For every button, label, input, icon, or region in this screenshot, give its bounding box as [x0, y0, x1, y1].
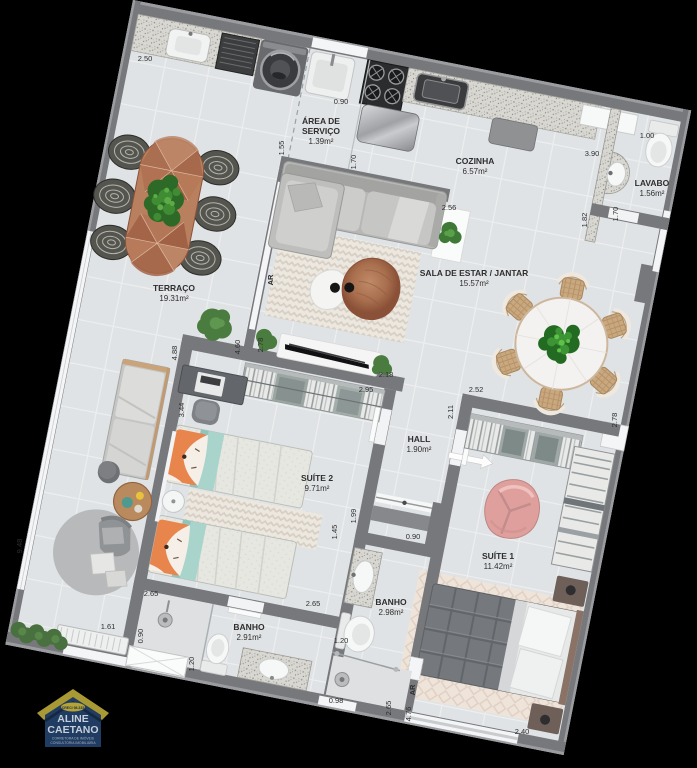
svg-text:3.44: 3.44 — [177, 403, 186, 418]
svg-text:SUÍTE 1: SUÍTE 1 — [482, 551, 514, 561]
svg-text:0.90: 0.90 — [406, 532, 421, 541]
svg-text:1.82: 1.82 — [580, 213, 589, 228]
svg-text:AR: AR — [408, 684, 417, 695]
svg-text:2.18: 2.18 — [379, 370, 394, 379]
svg-text:2.65: 2.65 — [144, 589, 159, 598]
svg-text:1.39m²: 1.39m² — [309, 137, 334, 146]
svg-text:AR: AR — [266, 274, 275, 285]
svg-text:1.99: 1.99 — [349, 509, 358, 524]
svg-text:19.31m²: 19.31m² — [159, 294, 189, 303]
svg-text:SERVIÇO: SERVIÇO — [302, 126, 340, 136]
svg-text:1.61: 1.61 — [101, 622, 116, 631]
svg-text:15.57m²: 15.57m² — [459, 279, 489, 288]
svg-text:2.65: 2.65 — [384, 701, 393, 716]
svg-text:0.90: 0.90 — [136, 629, 145, 644]
svg-text:2.78: 2.78 — [610, 413, 619, 428]
svg-text:2.65: 2.65 — [306, 599, 321, 608]
svg-text:1.00: 1.00 — [640, 131, 655, 140]
svg-text:2.98m²: 2.98m² — [379, 608, 404, 617]
svg-text:SUÍTE 2: SUÍTE 2 — [301, 473, 333, 483]
svg-text:1.70: 1.70 — [611, 207, 620, 222]
svg-text:2.52: 2.52 — [469, 385, 484, 394]
svg-text:ÁREA DE: ÁREA DE — [302, 116, 340, 126]
svg-text:2.91m²: 2.91m² — [237, 633, 262, 642]
svg-text:0.98: 0.98 — [329, 696, 344, 705]
svg-text:2.56: 2.56 — [442, 203, 457, 212]
svg-text:2.50: 2.50 — [138, 54, 153, 63]
svg-text:CAETANO: CAETANO — [47, 724, 98, 736]
svg-text:6.57m²: 6.57m² — [463, 167, 488, 176]
svg-text:9.48: 9.48 — [15, 539, 24, 554]
svg-text:0.90: 0.90 — [334, 97, 349, 106]
svg-text:1.45: 1.45 — [330, 525, 339, 540]
svg-text:LAVABO: LAVABO — [635, 178, 670, 188]
svg-text:1.20: 1.20 — [334, 636, 349, 645]
svg-text:1.90m²: 1.90m² — [407, 445, 432, 454]
svg-text:2.95: 2.95 — [359, 385, 374, 394]
svg-text:2.11: 2.11 — [446, 405, 455, 419]
svg-text:2.40: 2.40 — [515, 727, 530, 736]
svg-text:BANHO: BANHO — [233, 622, 265, 632]
svg-text:CONSULTORIA IMOBILIÁRIA: CONSULTORIA IMOBILIÁRIA — [50, 741, 96, 745]
svg-text:4.88: 4.88 — [170, 346, 179, 361]
svg-text:SALA DE ESTAR / JANTAR: SALA DE ESTAR / JANTAR — [420, 268, 528, 278]
svg-text:CORRETORA DE IMÓVEIS: CORRETORA DE IMÓVEIS — [52, 736, 95, 741]
svg-text:1.70: 1.70 — [349, 155, 358, 170]
svg-text:2.78: 2.78 — [256, 338, 265, 353]
svg-text:9.71m²: 9.71m² — [305, 484, 330, 493]
svg-text:TERRAÇO: TERRAÇO — [153, 283, 195, 293]
svg-text:CRECI 98.335: CRECI 98.335 — [62, 706, 85, 710]
svg-text:4.76: 4.76 — [404, 707, 413, 722]
svg-text:1.55: 1.55 — [277, 141, 286, 156]
svg-text:4.60: 4.60 — [233, 340, 242, 355]
svg-text:1.56m²: 1.56m² — [640, 189, 665, 198]
svg-text:3.90: 3.90 — [585, 149, 600, 158]
svg-text:11.42m²: 11.42m² — [484, 562, 513, 571]
svg-text:HALL: HALL — [408, 434, 431, 444]
svg-text:COZINHA: COZINHA — [456, 156, 495, 166]
svg-text:BANHO: BANHO — [375, 597, 407, 607]
svg-text:1.20: 1.20 — [187, 657, 196, 672]
